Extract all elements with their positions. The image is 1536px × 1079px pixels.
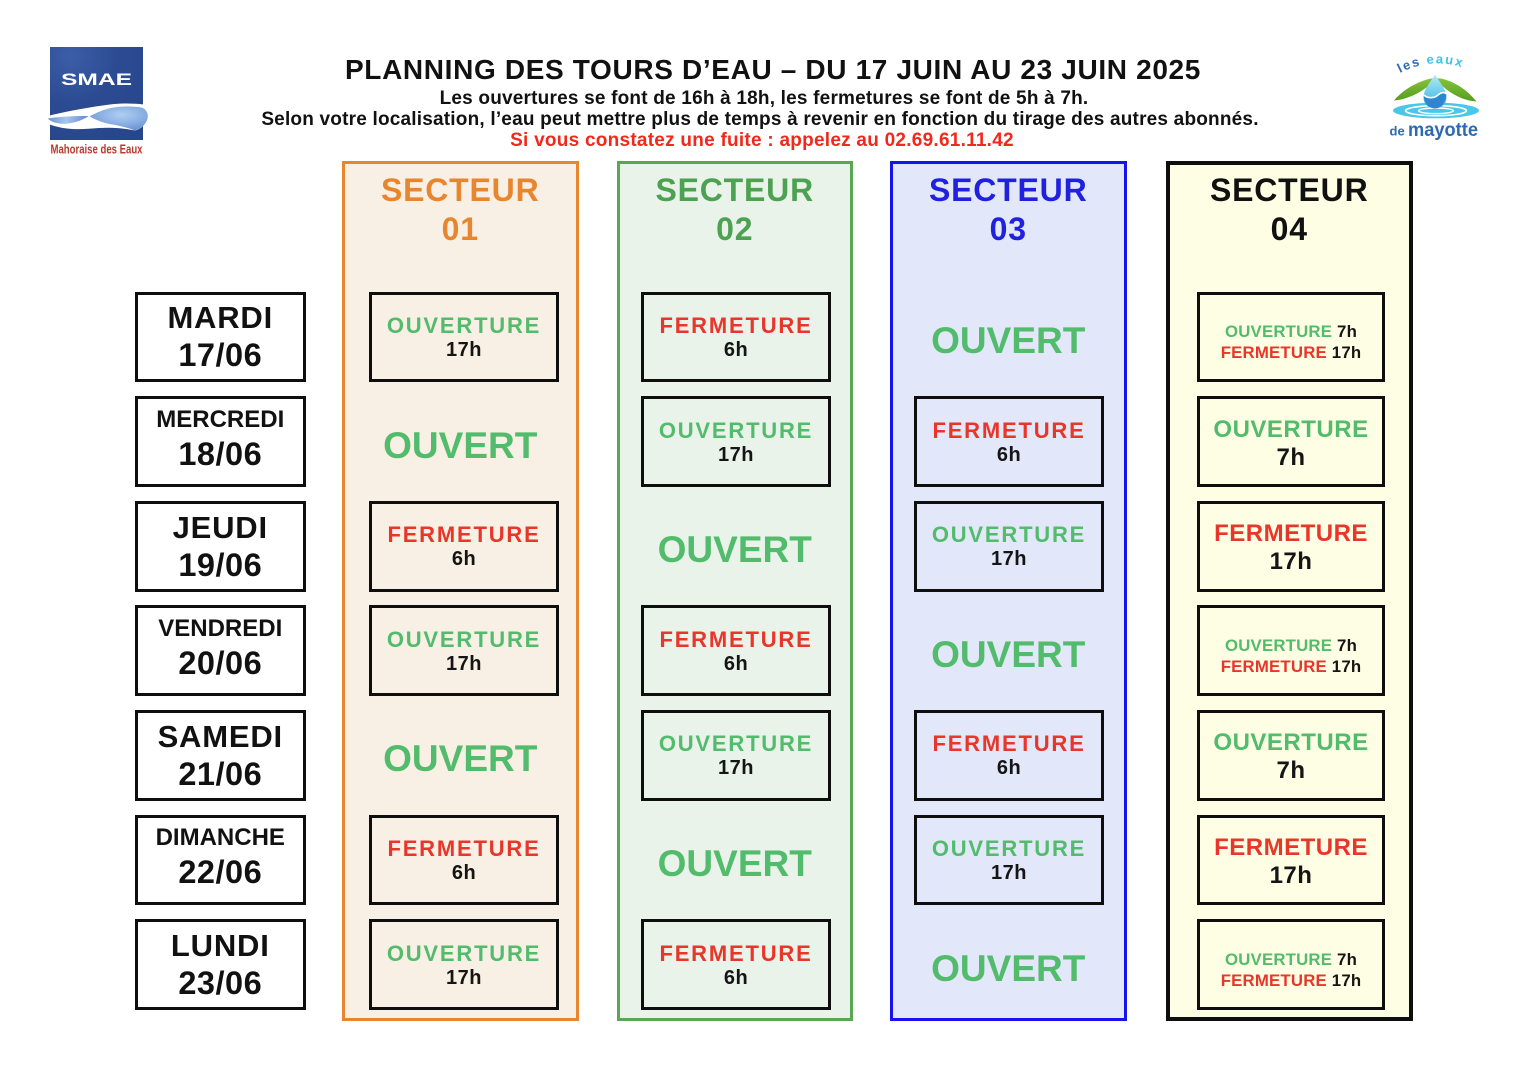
svg-text:mayotte: mayotte — [1408, 119, 1478, 141]
svg-text:de: de — [1390, 124, 1405, 139]
svg-text:Mahoraise des Eaux: Mahoraise des Eaux — [51, 143, 143, 157]
svg-text:les eaux: les eaux — [1395, 51, 1466, 75]
svg-text:SMAE: SMAE — [61, 71, 132, 89]
